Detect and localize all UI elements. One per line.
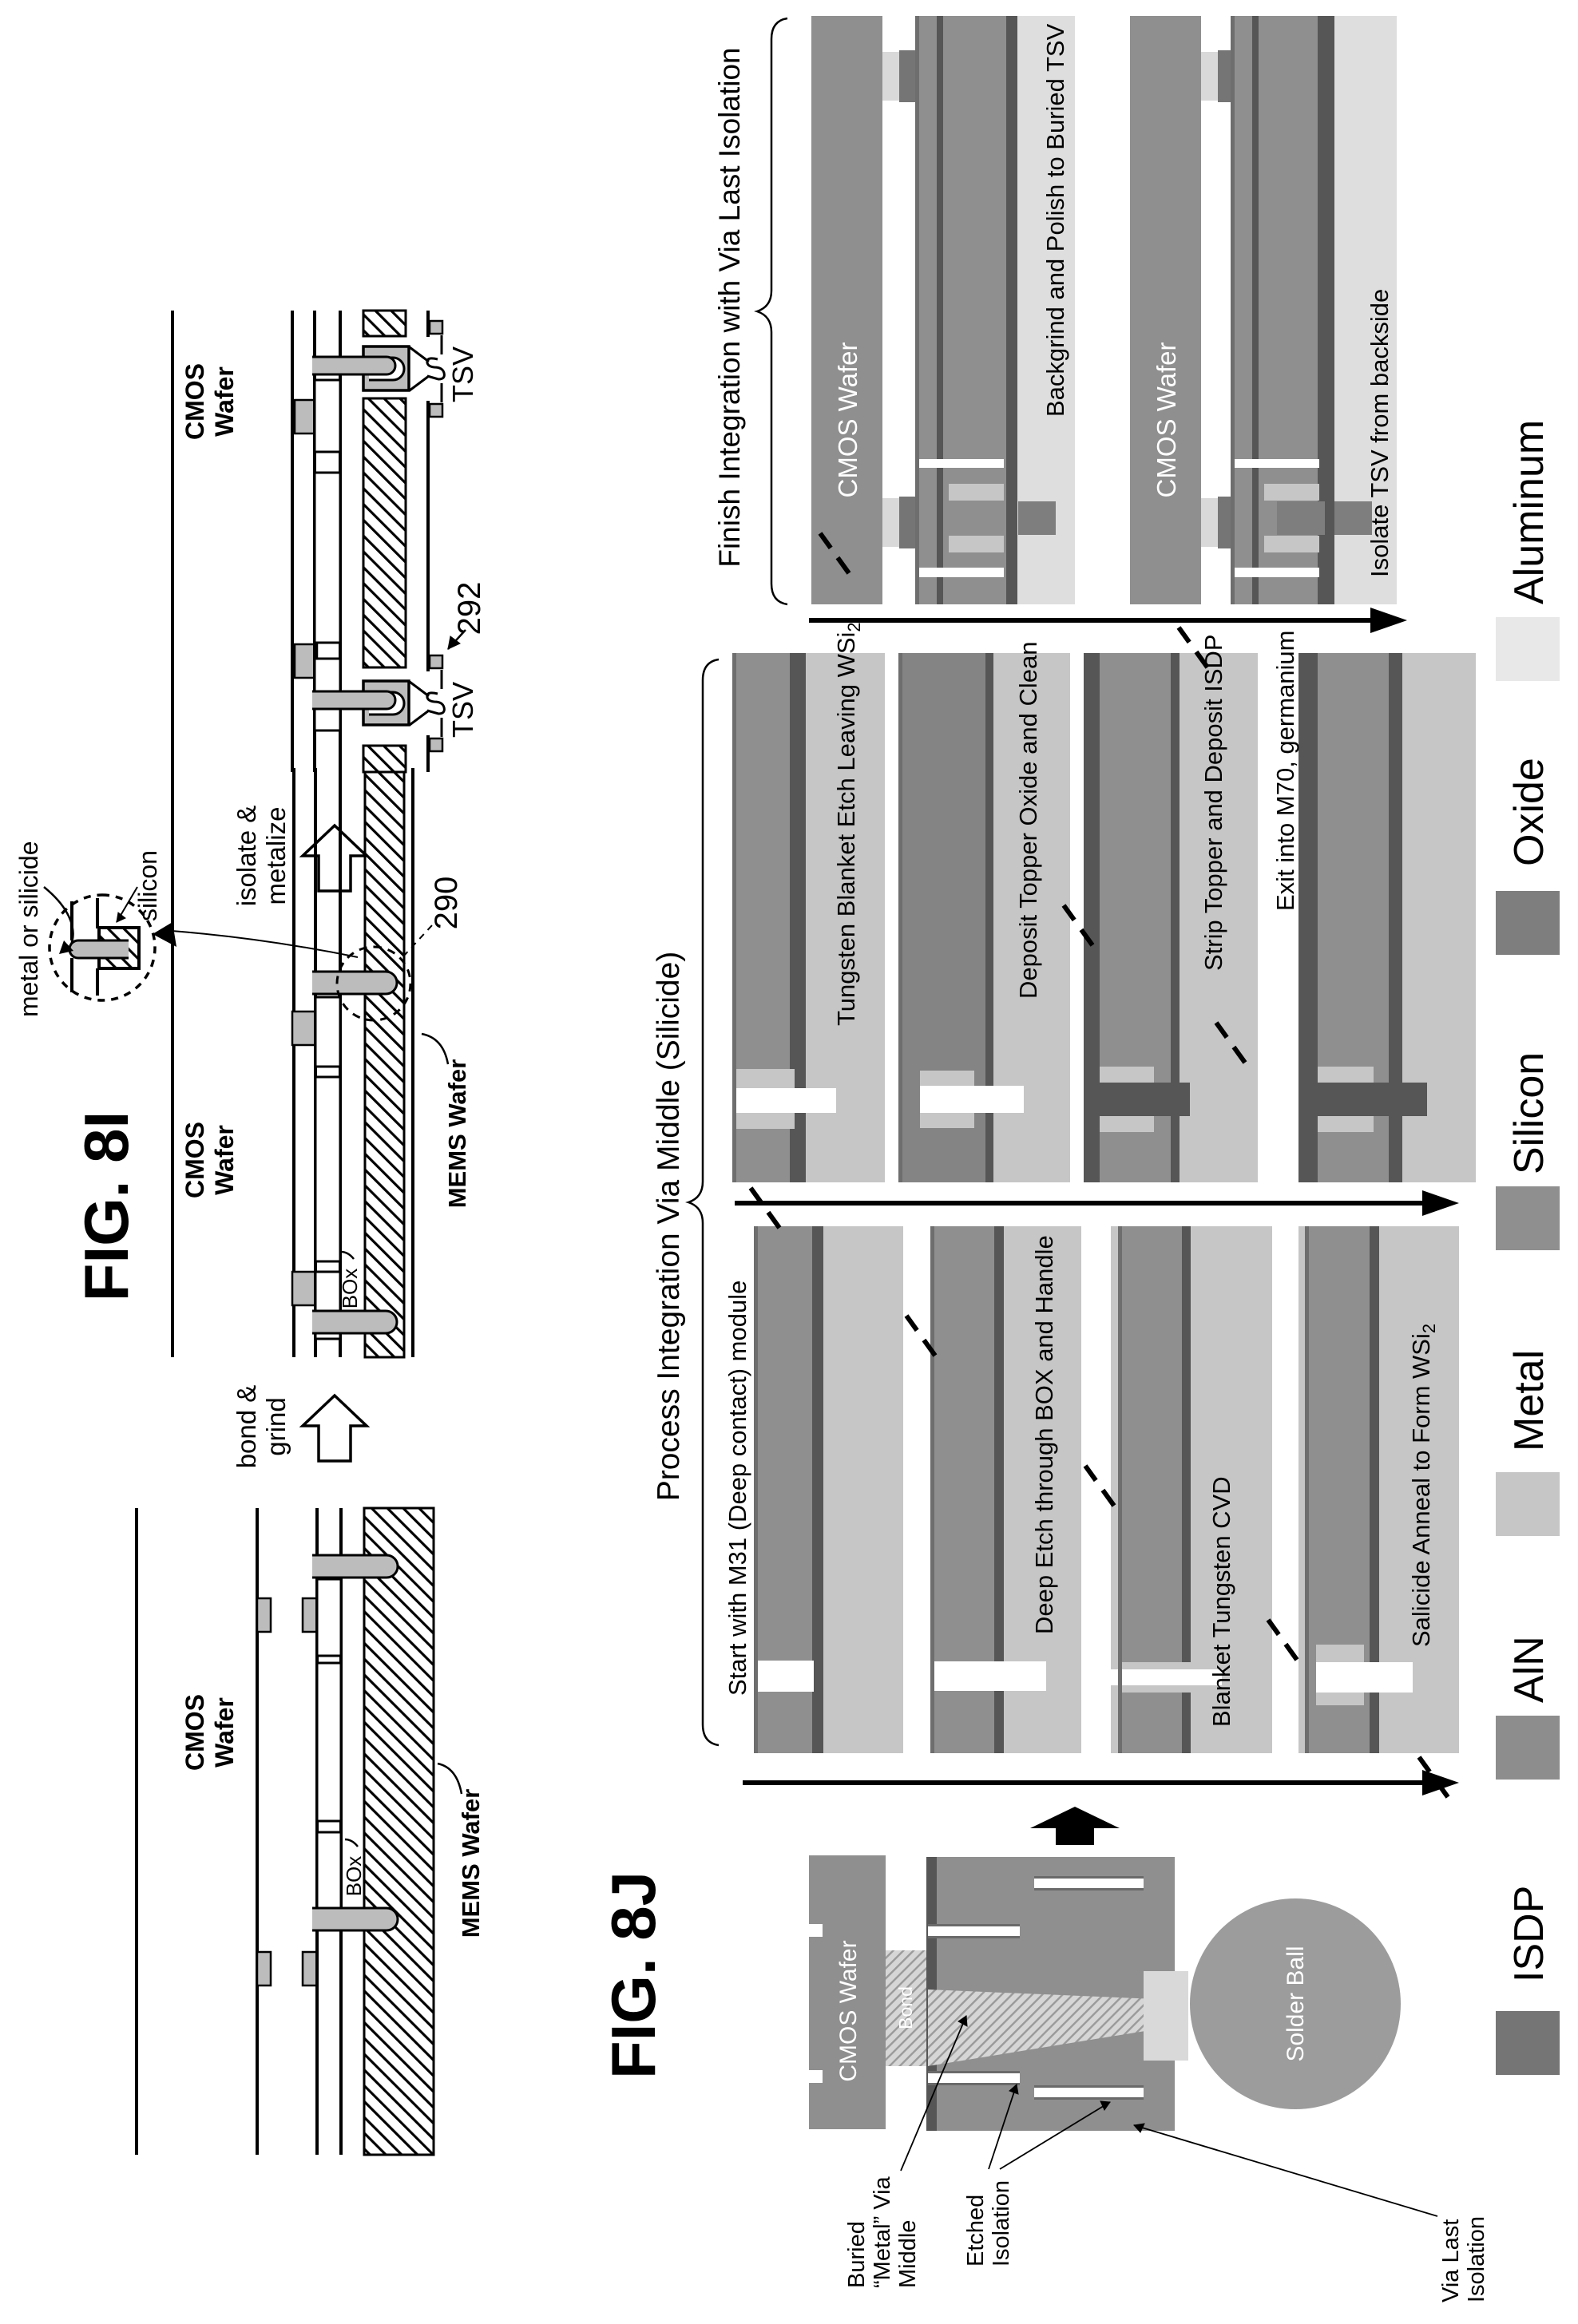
svg-text:bond &: bond & xyxy=(232,1385,261,1469)
svg-text:MEMS Wafer: MEMS Wafer xyxy=(457,1789,485,1938)
svg-text:CMOS: CMOS xyxy=(180,1694,209,1771)
svg-text:Strip Topper and Deposit ISDP: Strip Topper and Deposit ISDP xyxy=(1199,634,1227,971)
svg-text:Metal: Metal xyxy=(1506,1350,1552,1451)
svg-text:292: 292 xyxy=(452,582,487,635)
svg-text:FIG. 8I: FIG. 8I xyxy=(71,1111,141,1301)
svg-text:silicon: silicon xyxy=(133,850,162,921)
svg-text:Silicon: Silicon xyxy=(1506,1052,1552,1174)
svg-text:Etched: Etched xyxy=(963,2195,989,2267)
svg-text:Isolation: Isolation xyxy=(989,2180,1014,2267)
svg-text:Deep Etch through BOX and Hand: Deep Etch through BOX and Handle xyxy=(1030,1235,1058,1634)
svg-text:Isolation: Isolation xyxy=(1464,2216,1489,2302)
svg-text:FIG. 8J: FIG. 8J xyxy=(598,1871,668,2079)
svg-text:Buried: Buried xyxy=(844,2221,870,2288)
svg-text:Finish Integration with Via La: Finish Integration with Via Last Isolati… xyxy=(713,47,746,567)
svg-text:290: 290 xyxy=(429,877,464,930)
svg-text:Blanket Tungsten CVD: Blanket Tungsten CVD xyxy=(1207,1476,1235,1727)
svg-text:Middle: Middle xyxy=(895,2220,921,2288)
svg-text:Tungsten Blanket Etch Leaving: Tungsten Blanket Etch Leaving WSi2 xyxy=(832,622,864,1026)
svg-text:Deposit Topper Oxide and Clean: Deposit Topper Oxide and Clean xyxy=(1014,642,1042,1000)
svg-text:Start with M31 (Deep contact): Start with M31 (Deep contact) module xyxy=(724,1281,751,1696)
svg-text:Via Last: Via Last xyxy=(1438,2219,1464,2302)
svg-text:TSV: TSV xyxy=(446,682,479,738)
svg-text:CMOS Wafer: CMOS Wafer xyxy=(835,1940,862,2081)
svg-text:“Metal” Via: “Metal” Via xyxy=(870,2176,895,2288)
svg-text:Wafer: Wafer xyxy=(210,1125,239,1195)
svg-text:BOx: BOx xyxy=(338,1269,362,1309)
svg-text:Wafer: Wafer xyxy=(210,366,239,437)
svg-text:Aluminum: Aluminum xyxy=(1506,420,1552,604)
svg-text:metalize: metalize xyxy=(261,807,291,905)
svg-text:Oxide: Oxide xyxy=(1506,758,1552,866)
svg-text:MEMS Wafer: MEMS Wafer xyxy=(443,1059,471,1209)
svg-text:AlN: AlN xyxy=(1506,1636,1552,1703)
svg-text:Solder Ball: Solder Ball xyxy=(1283,1946,1309,2061)
svg-text:Process Integration Via Middle: Process Integration Via Middle (Silicide… xyxy=(652,952,686,1502)
svg-text:CMOS: CMOS xyxy=(180,1122,209,1198)
svg-text:isolate &: isolate & xyxy=(232,806,261,907)
svg-text:grind: grind xyxy=(261,1397,291,1455)
svg-text:Wafer: Wafer xyxy=(210,1697,239,1768)
svg-text:Salicide Anneal to Form WSi2: Salicide Anneal to Form WSi2 xyxy=(1407,1324,1439,1647)
svg-text:BOx: BOx xyxy=(342,1856,366,1897)
svg-text:Backgrind and Polish to Buried: Backgrind and Polish to Buried TSV xyxy=(1041,23,1069,417)
svg-text:metal or silicide: metal or silicide xyxy=(14,841,43,1017)
svg-text:ISDP: ISDP xyxy=(1506,1886,1552,1982)
svg-text:Isolate TSV from backside: Isolate TSV from backside xyxy=(1366,289,1394,577)
svg-text:TSV: TSV xyxy=(446,346,479,402)
svg-text:Exit into M70, germanium: Exit into M70, germanium xyxy=(1271,631,1299,911)
svg-text:CMOS: CMOS xyxy=(180,363,209,440)
svg-text:Bond: Bond xyxy=(895,1986,916,2029)
svg-text:CMOS Wafer: CMOS Wafer xyxy=(833,342,862,498)
svg-text:CMOS Wafer: CMOS Wafer xyxy=(1152,342,1181,498)
